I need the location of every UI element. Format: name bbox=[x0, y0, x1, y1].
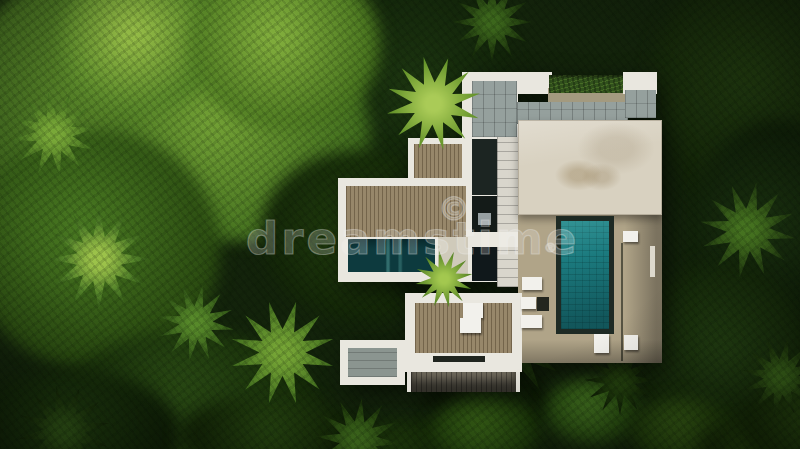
side-walkway-frame bbox=[340, 340, 405, 385]
rooftop-stairs bbox=[497, 137, 518, 287]
concrete-roof-slab bbox=[518, 120, 662, 215]
bench-slot bbox=[433, 356, 485, 362]
roof-tiles-right bbox=[625, 90, 656, 118]
lap-pool-rim bbox=[556, 216, 614, 334]
edge-bench bbox=[650, 246, 655, 277]
ac-unit bbox=[478, 213, 491, 225]
roof-hedge bbox=[549, 75, 625, 93]
sun-lounger bbox=[463, 303, 483, 318]
glass-walkway bbox=[472, 247, 497, 281]
sun-lounger bbox=[521, 297, 536, 309]
main-deck-wood bbox=[346, 186, 466, 237]
villa-house bbox=[0, 0, 800, 449]
aerial-photo: © dreamstime ® bbox=[0, 0, 800, 449]
poolside-table bbox=[537, 297, 549, 311]
bridge-walkway bbox=[468, 232, 518, 247]
roof-tiles-left bbox=[472, 81, 517, 137]
sun-lounger bbox=[522, 277, 542, 290]
lap-pool-water bbox=[561, 221, 609, 329]
parasol-pole-shadow bbox=[621, 243, 623, 361]
skylight-glass bbox=[472, 139, 497, 195]
sun-lounger bbox=[594, 334, 609, 353]
sun-lounger bbox=[623, 231, 638, 242]
boardwalk-ramp bbox=[407, 372, 520, 392]
sun-lounger bbox=[521, 315, 542, 328]
sun-lounger bbox=[460, 318, 481, 333]
plunge-pool bbox=[348, 239, 435, 272]
side-walkway-tiles bbox=[348, 348, 397, 377]
sun-lounger bbox=[624, 335, 638, 350]
lower-deck-frame bbox=[405, 293, 522, 372]
